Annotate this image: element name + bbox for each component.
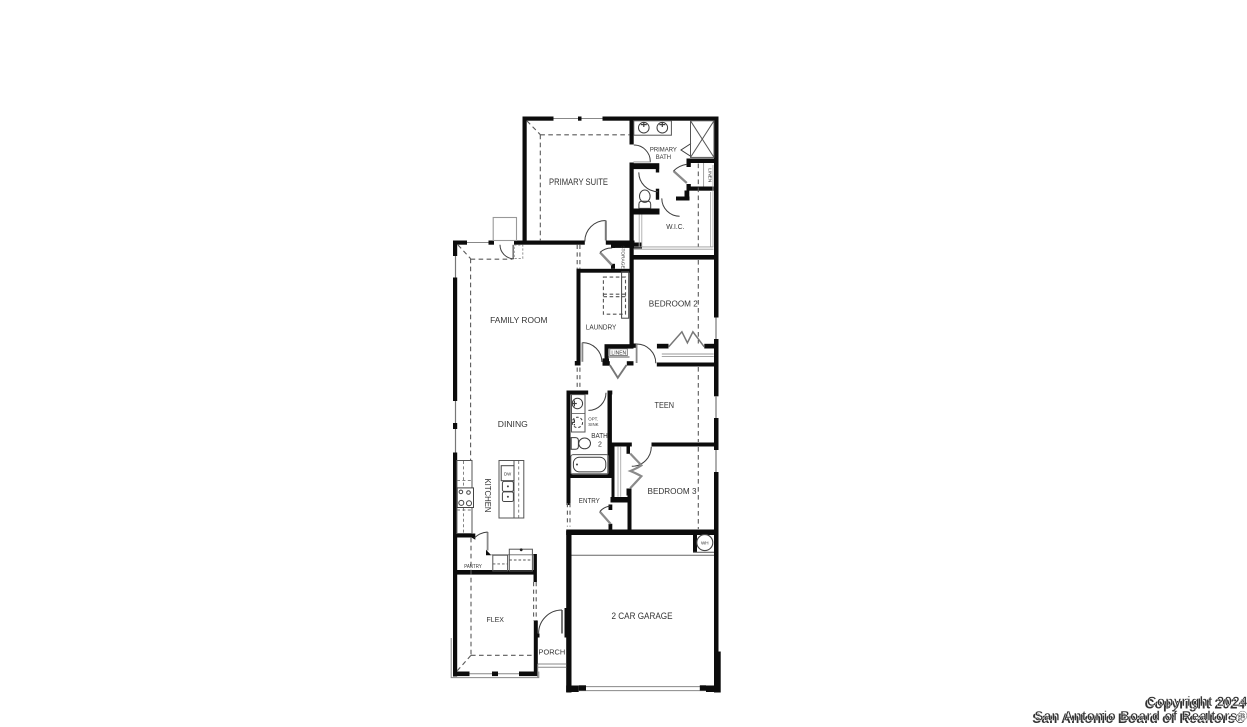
svg-text:BATH: BATH	[656, 154, 671, 161]
svg-text:OPT.: OPT.	[588, 417, 598, 422]
svg-text:PORCH: PORCH	[539, 647, 566, 656]
svg-text:Copyright 2024: Copyright 2024	[1147, 694, 1247, 709]
svg-text:LINEN: LINEN	[706, 168, 712, 183]
svg-text:San Antonio Board of Realtors®: San Antonio Board of Realtors®	[1035, 709, 1247, 724]
svg-text:FLEX: FLEX	[486, 615, 504, 624]
svg-text:BEDROOM 3: BEDROOM 3	[648, 486, 697, 496]
svg-text:BEDROOM 2: BEDROOM 2	[649, 298, 698, 308]
svg-text:PANTRY: PANTRY	[464, 564, 482, 570]
svg-text:W.I.C.: W.I.C.	[666, 222, 684, 231]
svg-text:KITCHEN: KITCHEN	[483, 479, 493, 513]
svg-text:BATH: BATH	[591, 433, 608, 440]
svg-text:DW: DW	[504, 471, 512, 476]
svg-text:STORAGE: STORAGE	[620, 245, 626, 268]
svg-text:LINEN: LINEN	[611, 351, 626, 357]
svg-text:PRIMARY SUITE: PRIMARY SUITE	[549, 177, 608, 187]
svg-text:2: 2	[598, 441, 602, 448]
svg-text:ENTRY: ENTRY	[579, 496, 600, 505]
svg-text:DINING: DINING	[498, 419, 528, 429]
svg-text:2 CAR GARAGE: 2 CAR GARAGE	[612, 611, 673, 621]
svg-text:TEEN: TEEN	[655, 401, 675, 410]
svg-text:SINK: SINK	[588, 422, 598, 427]
svg-text:LAUNDRY: LAUNDRY	[586, 323, 617, 332]
svg-text:PRIMARY: PRIMARY	[650, 147, 677, 154]
svg-text:FAMILY ROOM: FAMILY ROOM	[490, 315, 547, 325]
svg-text:WH: WH	[701, 541, 709, 546]
